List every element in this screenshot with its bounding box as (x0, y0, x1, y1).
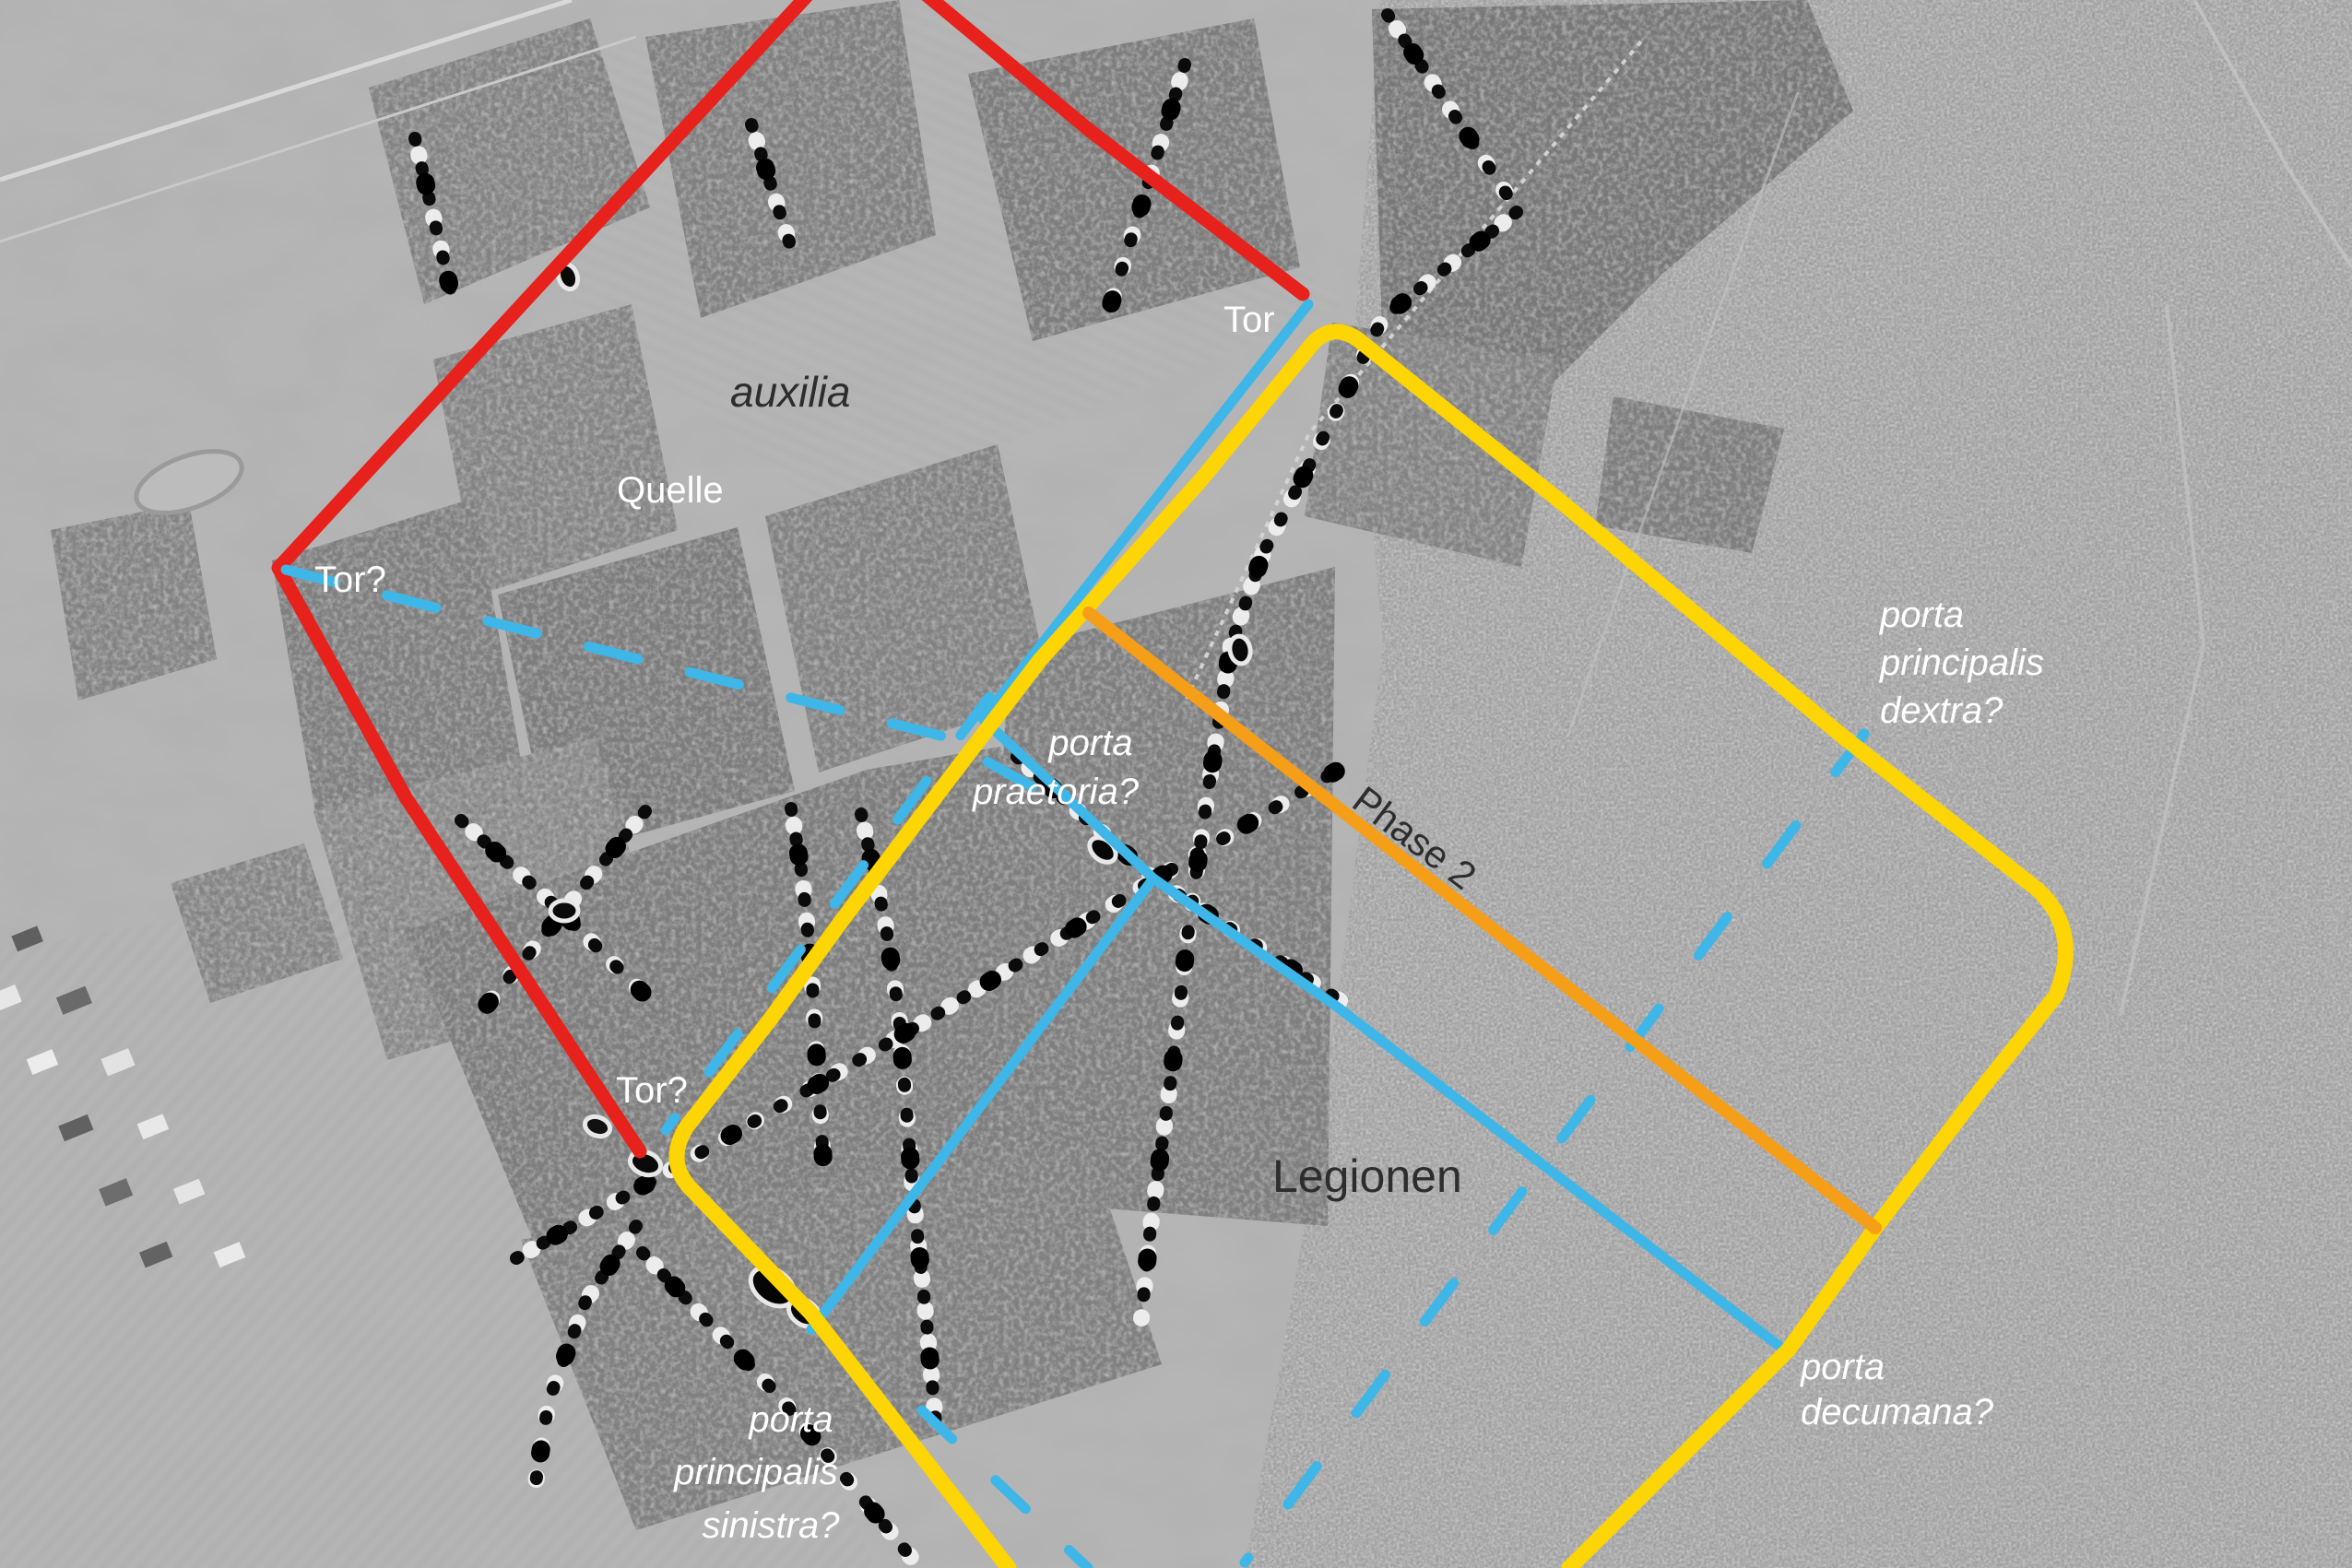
svg-text:Tor: Tor (1223, 300, 1275, 340)
svg-text:Legionen: Legionen (1272, 1150, 1462, 1202)
svg-text:porta: porta (1047, 723, 1132, 763)
svg-text:porta: porta (1879, 595, 1964, 635)
svg-text:praetoria?: praetoria? (972, 772, 1140, 812)
svg-text:auxilia: auxilia (730, 368, 850, 416)
svg-text:Tor?: Tor? (314, 560, 386, 600)
svg-text:dextra?: dextra? (1880, 690, 2003, 731)
svg-text:decumana?: decumana? (1801, 1392, 1994, 1432)
svg-text:sinistra?: sinistra? (703, 1505, 841, 1546)
svg-text:Quelle: Quelle (617, 470, 724, 511)
svg-text:porta: porta (1800, 1347, 1885, 1387)
svg-text:Tor?: Tor? (616, 1070, 688, 1111)
svg-text:porta: porta (748, 1399, 833, 1440)
svg-text:principalis: principalis (673, 1452, 838, 1492)
svg-text:principalis: principalis (1879, 643, 2044, 683)
